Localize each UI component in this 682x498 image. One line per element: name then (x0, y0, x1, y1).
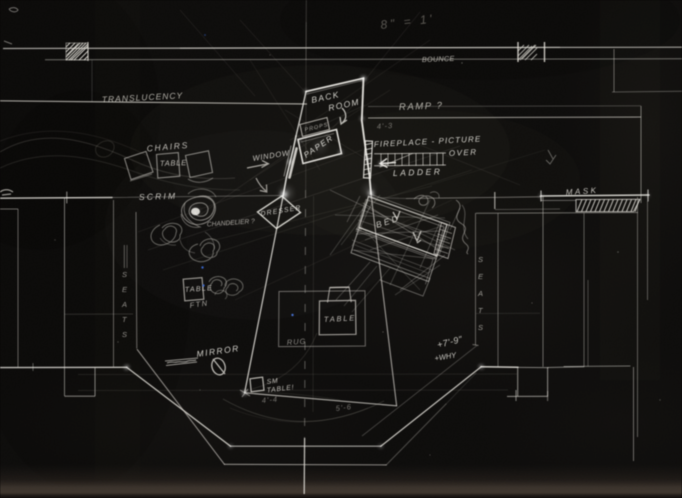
svg-text:BOUNCE: BOUNCE (422, 54, 455, 64)
svg-text:RAMP ?: RAMP ? (399, 100, 444, 113)
svg-text:TABLE: TABLE (324, 313, 357, 324)
svg-text:A: A (121, 300, 127, 309)
svg-text:S: S (478, 255, 483, 264)
svg-text:LADDER: LADDER (393, 166, 443, 178)
svg-text:4'-4: 4'-4 (261, 395, 278, 405)
svg-text:SCRIM: SCRIM (139, 191, 178, 202)
svg-text:SM: SM (266, 378, 279, 386)
svg-text:RUG: RUG (287, 337, 307, 347)
svg-text:A: A (477, 289, 483, 298)
svg-text:S: S (122, 270, 127, 279)
svg-text:4'-3: 4'-3 (377, 121, 394, 131)
svg-text:S: S (122, 330, 127, 339)
svg-text:OVER: OVER (449, 148, 478, 158)
svg-text:S: S (478, 323, 483, 332)
svg-text:TABLE: TABLE (160, 158, 188, 168)
svg-text:+6: +6 (355, 227, 362, 233)
